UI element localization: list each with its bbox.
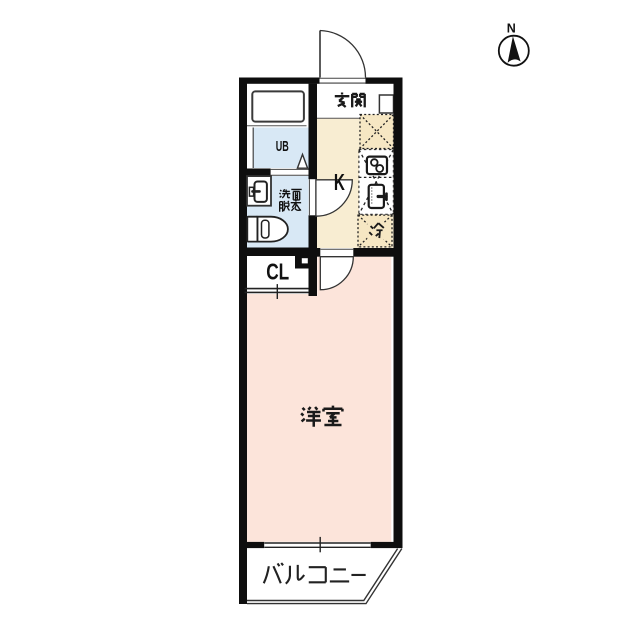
svg-text:CL: CL xyxy=(266,259,289,285)
svg-text:N: N xyxy=(507,22,516,36)
svg-text:UB: UB xyxy=(276,139,289,155)
svg-text:K: K xyxy=(334,169,345,195)
